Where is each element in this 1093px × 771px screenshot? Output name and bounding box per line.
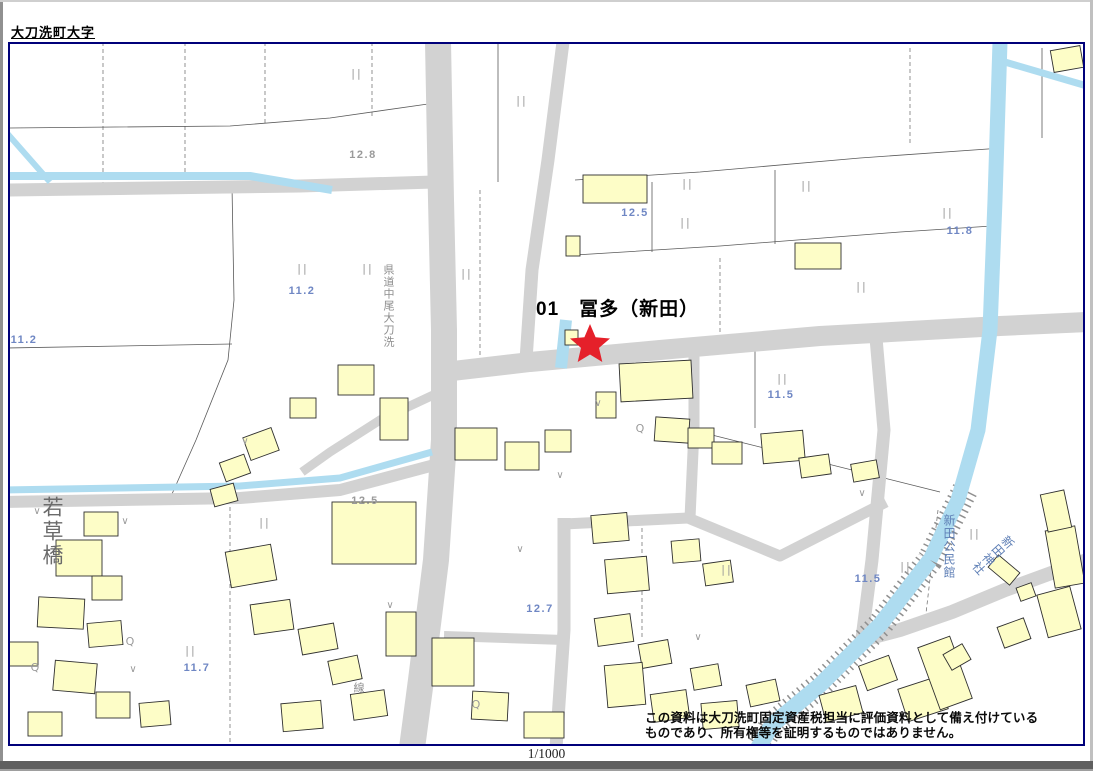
elevation-labels-layer: 12.811.211.212.511.811.512.512.711.511.7	[11, 149, 974, 674]
elevation-label: 11.5	[768, 389, 795, 401]
building	[28, 712, 62, 736]
field-symbol: ∨	[121, 516, 128, 527]
elevation-label: 11.2	[289, 285, 316, 297]
building	[250, 599, 294, 634]
building	[654, 417, 690, 443]
building	[690, 664, 721, 691]
building	[746, 679, 780, 707]
building	[328, 655, 362, 685]
window-edge-top	[0, 0, 1093, 2]
building	[380, 398, 408, 440]
building	[455, 428, 497, 460]
building	[712, 442, 742, 464]
map-viewer-window: 大刀洗町大字	[0, 0, 1093, 771]
field-symbol: ∨	[694, 632, 701, 643]
symbols-layer: ||||||||||||||||||||||||||||||||∨∨∨∨∨∨∨∨…	[31, 67, 981, 711]
paddy-field-symbol: ||	[801, 179, 812, 192]
roads-layer	[6, 42, 1087, 748]
building	[84, 512, 118, 536]
building	[619, 360, 693, 402]
building	[594, 614, 634, 647]
building	[799, 454, 831, 478]
field-symbol: ∨	[129, 664, 136, 675]
building	[545, 430, 571, 452]
field-symbol: ∨	[386, 600, 393, 611]
elevation-label: 12.5	[621, 207, 648, 219]
field-symbol: ∨	[594, 398, 601, 409]
building	[350, 690, 387, 720]
building	[92, 576, 122, 600]
paddy-field-symbol: ||	[777, 372, 788, 385]
window-edge-left	[0, 0, 3, 771]
building	[87, 621, 123, 648]
building	[432, 638, 474, 686]
building	[219, 454, 250, 482]
building	[1050, 46, 1083, 73]
building	[290, 398, 316, 418]
building	[591, 512, 629, 543]
building	[638, 640, 672, 669]
elevation-label: 11.8	[947, 225, 974, 237]
place-label-wakakusa-bridge: 若草橋	[36, 496, 66, 568]
paddy-field-symbol: ||	[516, 94, 527, 107]
well-symbol: Q	[31, 661, 40, 674]
field-symbol: ∨	[858, 488, 865, 499]
paddy-field-symbol: ||	[351, 67, 362, 80]
field-symbol: ∨	[556, 470, 563, 481]
disclaimer-text: この資料は大刀洗町固定資産税担当に評価資料として備え付けている ものであり、所有…	[645, 711, 1038, 741]
map-canvas: ||||||||||||||||||||||||||||||||∨∨∨∨∨∨∨∨…	[0, 0, 1093, 771]
well-symbol: Q	[126, 635, 135, 648]
elevation-label: 12.7	[526, 603, 553, 615]
paddy-field-symbol: ||	[680, 216, 691, 229]
marker-label: 01 冨多（新田）	[536, 294, 699, 321]
building	[139, 701, 171, 728]
place-label-prefectural-road: 県道中尾大刀洗	[380, 264, 396, 348]
building	[795, 243, 841, 269]
window-bottom-bar	[0, 761, 1093, 769]
place-label-line-suffix: 線	[350, 682, 366, 693]
disclaimer-line2: ものであり、所有権等を証明するものではありません。	[645, 726, 1038, 741]
paddy-field-symbol: ||	[682, 177, 693, 190]
paddy-field-symbol: ||	[900, 560, 911, 573]
field-symbol: ∨	[516, 544, 523, 555]
paddy-field-symbol: ||	[185, 644, 196, 657]
building	[1037, 586, 1081, 637]
building	[298, 623, 338, 655]
elevation-label: 11.2	[11, 334, 38, 346]
building	[566, 236, 580, 256]
building	[688, 428, 714, 448]
paddy-field-symbol: ||	[942, 206, 953, 219]
building	[386, 612, 416, 656]
building	[671, 539, 701, 563]
building	[332, 502, 416, 564]
building	[604, 662, 646, 707]
building	[37, 597, 85, 629]
building	[338, 365, 374, 395]
building	[505, 442, 539, 470]
field-symbol: ∨	[241, 436, 248, 447]
place-label-community-hall: 新田公民館	[941, 514, 958, 579]
building	[524, 712, 564, 738]
building	[997, 618, 1031, 648]
paddy-field-symbol: ||	[856, 280, 867, 293]
building	[1040, 490, 1071, 532]
disclaimer-line1: この資料は大刀洗町固定資産税担当に評価資料として備え付けている	[645, 711, 1038, 726]
paddy-field-symbol: ||	[259, 516, 270, 529]
well-symbol: Q	[636, 422, 645, 435]
building	[851, 460, 880, 482]
elevation-label: 12.5	[351, 495, 378, 507]
building	[96, 692, 130, 718]
paddy-field-symbol: ||	[721, 563, 732, 576]
paddy-field-symbol: ||	[969, 527, 980, 540]
building	[605, 556, 650, 594]
well-symbol: Q	[472, 698, 481, 711]
building	[225, 544, 277, 587]
building	[281, 700, 323, 731]
paddy-field-symbol: ||	[297, 262, 308, 275]
building	[859, 655, 898, 690]
elevation-label: 12.8	[349, 149, 376, 161]
elevation-label: 11.7	[184, 662, 211, 674]
paddy-field-symbol: ||	[362, 262, 373, 275]
paddy-field-symbol: ||	[461, 267, 472, 280]
scale-label: 1/1000	[0, 746, 1093, 762]
elevation-label: 11.5	[855, 573, 882, 585]
building	[583, 175, 647, 203]
building	[53, 660, 97, 694]
